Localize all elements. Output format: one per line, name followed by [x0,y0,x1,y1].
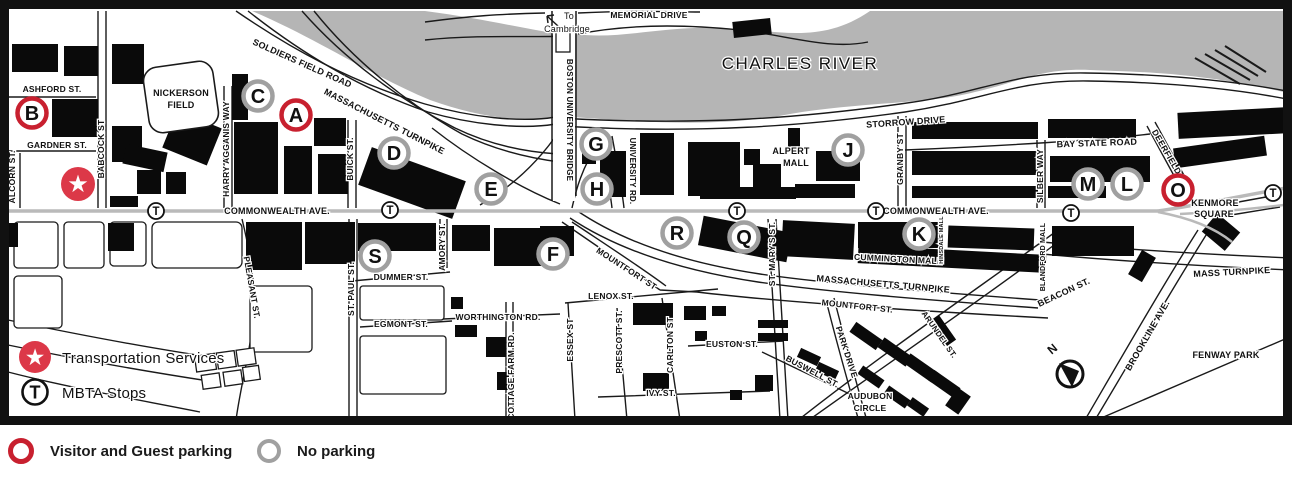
map-label-silber-way: SILBER WAY [1035,149,1045,203]
building [8,223,18,247]
svg-text:H: H [590,179,604,201]
svg-text:E: E [484,179,497,201]
building [1173,136,1267,169]
svg-text:A: A [289,105,303,127]
parking-marker-f[interactable]: F [539,240,568,269]
parking-marker-h[interactable]: H [583,175,612,204]
map-label-kenmore: KENMORE [1191,198,1238,208]
map-label-granby-st: GRANBY ST [895,133,905,185]
building [712,306,726,316]
map-label-amory-st: AMORY ST. [437,223,447,271]
svg-text:F: F [547,244,559,266]
svg-text:T: T [152,206,159,218]
parking-marker-a[interactable]: A [282,101,311,130]
map-label-cottage-farm-rd: COTTAGE FARM RD. [506,332,516,420]
map-label-mbta-stops: MBTA Stops [62,385,146,402]
mbta-stop-icon: T [1265,185,1281,201]
map-label-mountfort-st: MOUNTFORT ST [595,245,660,292]
building [122,144,167,172]
map-label-bay-state-road: BAY STATE ROAD [1057,137,1138,150]
svg-text:T: T [1067,208,1074,220]
legend-star-icon: ★ [19,341,51,373]
building [137,170,161,194]
map-label-university-rd: UNIVERSITY RD. [628,138,637,205]
no-parking-label: No parking [297,443,375,460]
map-label-to: To [564,11,574,21]
svg-text:T: T [733,206,740,218]
svg-text:T: T [30,383,41,403]
no-parking-ring-icon [257,439,281,463]
parking-marker-g[interactable]: G [582,130,611,159]
visitor-parking-ring-icon [8,438,34,464]
map-label-memorial-drive: MEMORIAL DRIVE [610,10,687,20]
svg-text:R: R [670,223,685,245]
building [912,186,1038,198]
map-label-carlton-st: CARLTON ST [665,316,675,373]
building [1177,107,1288,139]
building [700,187,796,199]
parking-marker-q[interactable]: Q [730,223,759,252]
legend-no-parking: No parking [257,439,375,463]
svg-text:G: G [588,134,604,156]
building [730,390,742,400]
parking-marker-r[interactable]: R [663,219,692,248]
svg-text:★: ★ [25,344,46,370]
svg-text:Q: Q [736,227,752,249]
map-label-charles-river: CHARLES RIVER [722,54,878,73]
map-label-alpert: ALPERT [772,146,810,156]
map-label-babcock-st: BABCOCK ST [96,119,106,178]
svg-text:B: B [25,103,39,125]
map-label-hinsdale-mall: HINSDALE MALL [939,216,945,264]
transportation-services-star-icon: ★ [61,167,95,201]
parking-marker-m[interactable]: M [1074,170,1103,199]
map-label-buick-st: BUICK ST. [345,137,355,180]
building [788,128,800,148]
svg-text:M: M [1080,174,1097,196]
map-label-commonwealth-ave: COMMONWEALTH AVE. [883,206,989,216]
mbta-stop-icon: T [868,203,884,219]
building [948,226,1035,251]
parking-legend: Visitor and Guest parking No parking [0,432,1292,472]
building [314,118,346,146]
map-label-n: N [1045,341,1061,357]
building [781,220,855,260]
map-label-euston-st: EUSTON ST. [706,339,758,349]
svg-text:T: T [386,205,393,217]
svg-text:L: L [1121,174,1133,196]
parking-marker-e[interactable]: E [477,175,506,204]
map-label-essex-st: ESSEX ST [565,318,575,362]
building [744,149,760,165]
building [684,306,706,320]
building [1048,119,1136,138]
parking-marker-k[interactable]: K [905,220,934,249]
compass-rose [1057,361,1083,387]
map-label-cambridge: Cambridge [544,24,590,34]
svg-text:C: C [251,86,265,108]
svg-text:D: D [387,143,401,165]
svg-text:★: ★ [67,171,89,198]
mbta-stop-icon: T [382,202,398,218]
building [755,375,773,391]
parking-marker-s[interactable]: S [361,242,390,271]
svg-text:O: O [1170,180,1186,202]
building [758,333,788,341]
map-label-worthington-rd: WORTHINGTON RD. [455,312,540,322]
map-label-brookline-ave: BROOKLINE AVE. [1123,299,1171,373]
building [166,172,186,194]
map-label-transportation-services: Transportation Services [62,350,224,367]
building [494,228,542,266]
visitor-parking-label: Visitor and Guest parking [50,443,232,460]
building [12,44,58,72]
legend-visitor-parking: Visitor and Guest parking [8,438,232,464]
building [64,46,98,76]
building [358,147,466,219]
map-label-gardner-st: GARDNER ST. [27,140,87,150]
building [52,99,98,137]
mbta-stop-icon: T [148,203,164,219]
building [451,297,463,309]
map-label-mall: MALL [783,158,809,168]
map-label-square: SQUARE [1194,209,1234,219]
parking-marker-b[interactable]: B [18,99,47,128]
parking-marker-l[interactable]: L [1113,170,1142,199]
parking-marker-c[interactable]: C [244,82,273,111]
building [110,196,138,207]
map-label-circle: CIRCLE [854,403,887,413]
svg-text:T: T [1269,188,1276,200]
building [849,322,882,350]
svg-text:K: K [912,224,927,246]
building [108,223,134,251]
building [486,337,506,357]
building [1052,226,1134,256]
map-label-dummer-st: DUMMER ST. [374,272,429,282]
mbta-stop-icon: T [1063,205,1079,221]
map-label-mountfort-st: MOUNTFORT ST. [821,297,893,314]
map-label-boston-university-bridge: BOSTON UNIVERSITY BRIDGE [565,59,574,182]
legend-mbta-icon: T [23,380,48,405]
building [912,151,1036,175]
map-label-st-mary-s-st: ST. MARY'S ST. [767,222,777,287]
parking-marker-o[interactable]: O [1164,176,1193,205]
building [284,146,312,194]
bu-parking-map-page: SOLDIERS FIELD ROADMASSACHUSETTS TURNPIK… [0,0,1292,478]
building [640,133,674,195]
map-label-prescott-st: PRESCOTT ST. [614,310,624,373]
building [795,184,855,198]
building [318,154,348,194]
map-label-mass-turnpike: MASS TURNPIKE [1193,265,1271,279]
svg-text:S: S [368,246,381,268]
svg-text:T: T [872,206,879,218]
map-label-egmont-st: EGMONT ST. [374,319,428,329]
map-label-ivy-st: IVY ST. [646,388,676,398]
building [758,320,788,328]
campus-map: SOLDIERS FIELD ROADMASSACHUSETTS TURNPIK… [0,0,1292,425]
building [112,44,144,84]
map-label-blandford-mall: BLANDFORD MALL [1040,222,1047,291]
map-label-lenox-st: LENOX ST. [588,291,634,301]
building [455,325,477,337]
map-label-audubon: AUDUBON [848,391,893,401]
parking-marker-d[interactable]: D [380,139,409,168]
map-label-field: FIELD [168,100,195,110]
map-label-fenway-park: FENWAY PARK [1192,350,1259,360]
map-label-commonwealth-ave: COMMONWEALTH AVE. [224,206,330,216]
mbta-stop-icon: T [729,203,745,219]
parking-marker-j[interactable]: J [834,136,863,165]
map-label-nickerson: NICKERSON [153,88,209,98]
map-label-ashford-st: ASHFORD ST. [23,84,82,94]
map-label-harry-agganis-way: HARRY AGGANIS WAY [221,101,231,197]
building [234,122,278,194]
building [452,225,490,251]
map-label-st-paul-st: ST. PAUL ST. [346,262,356,316]
svg-text:J: J [842,140,853,162]
building [246,222,302,270]
building [907,397,929,417]
building [305,222,355,264]
